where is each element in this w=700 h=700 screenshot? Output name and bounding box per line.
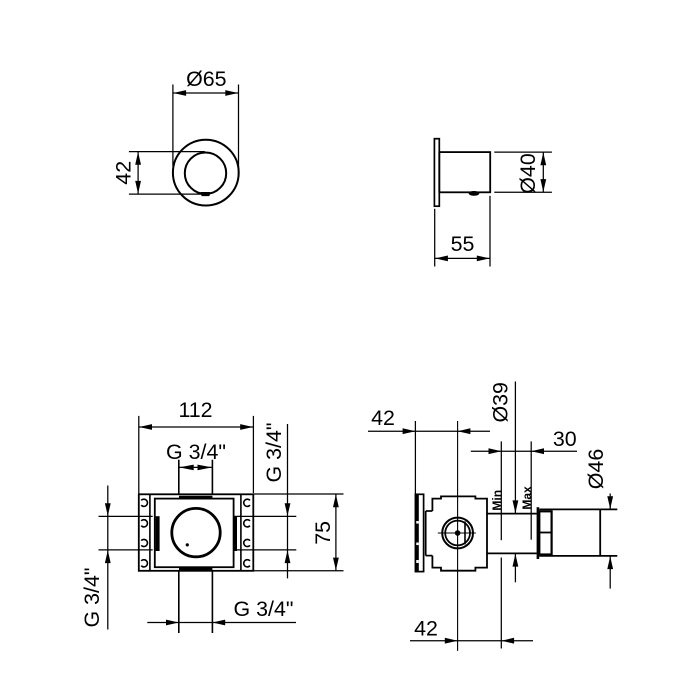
svg-text:Max: Max xyxy=(520,486,534,510)
svg-text:42: 42 xyxy=(371,406,395,430)
svg-text:42: 42 xyxy=(414,617,438,641)
svg-text:30: 30 xyxy=(553,427,577,451)
svg-text:Ø39: Ø39 xyxy=(488,382,512,422)
svg-text:Ø46: Ø46 xyxy=(584,449,608,489)
svg-text:G 3/4": G 3/4" xyxy=(80,568,104,628)
svg-text:Min: Min xyxy=(490,490,504,511)
svg-text:G 3/4": G 3/4" xyxy=(262,423,286,483)
svg-text:Ø40: Ø40 xyxy=(516,153,540,194)
svg-text:75: 75 xyxy=(311,521,335,545)
svg-text:42: 42 xyxy=(111,161,135,185)
svg-text:55: 55 xyxy=(451,232,475,256)
svg-text:G 3/4": G 3/4" xyxy=(166,440,226,464)
svg-text:G 3/4": G 3/4" xyxy=(234,597,294,621)
svg-text:Ø65: Ø65 xyxy=(186,67,226,91)
svg-text:112: 112 xyxy=(178,398,212,422)
